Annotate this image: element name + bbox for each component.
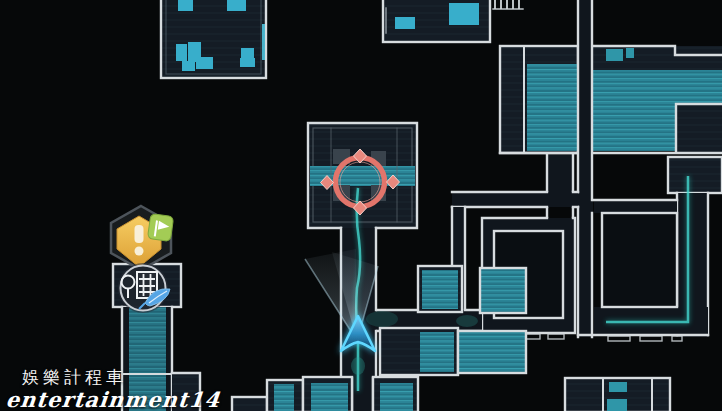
map-room-top-middle [383, 0, 490, 42]
game-map-screen: 娛樂計程車 entertainment14 [0, 0, 722, 411]
map-room-teal-b [480, 268, 526, 313]
map-hall-left [500, 46, 578, 153]
map-room-teal-d [458, 331, 526, 373]
map-room-teal-c [380, 328, 458, 375]
exclamation-icon [135, 225, 144, 256]
map-room-top-left [161, 0, 266, 78]
minimap[interactable] [0, 0, 722, 411]
flag-badge [147, 214, 173, 242]
map-corridor-vertical-main [577, 0, 593, 337]
map-room-teal-a [418, 266, 462, 312]
map-room-bottom-middle [565, 378, 670, 411]
